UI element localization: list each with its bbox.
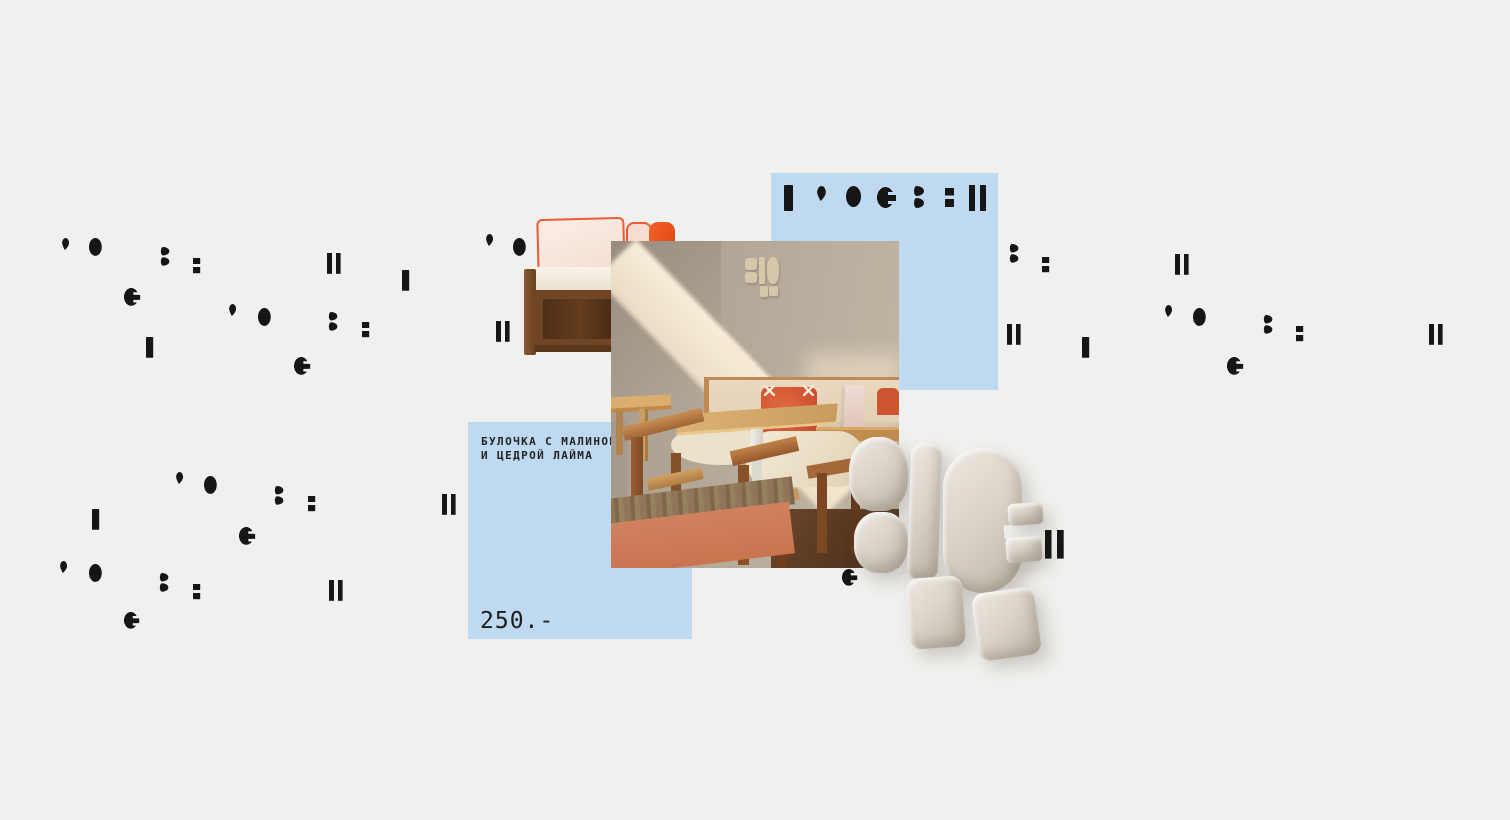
logo-blob-bottom-icon [854,512,908,573]
brand-glyph-esq-icon [308,496,315,511]
brand-glyph-oval-icon [258,308,271,326]
brand-glyph-oval-icon [89,238,102,256]
chair-leg [817,473,827,553]
wall-logo-icon [767,257,779,284]
sofa-wood-base [534,290,620,352]
wall-logo-icon [760,286,768,297]
brand-glyph-z3-icon [274,486,283,505]
brand-glyph-cnotch-icon [239,527,255,545]
poster-canvas: БУЛОЧКА С МАЛИНОЙ, И ЦЕДРОЙ ЛАЙМА 250.- [0,0,1510,820]
brand-glyph-cnotch-icon [1227,357,1243,375]
brand-glyph-dbar-icon [1429,324,1443,345]
brand-glyph-dbar-icon [442,494,456,515]
product-title-line1: БУЛОЧКА С МАЛИНОЙ, [481,434,625,449]
brand-glyph-esq-icon [193,258,200,273]
brand-glyph-z3-icon [159,573,168,592]
brand-glyph-cnotch-icon [124,288,140,306]
brand-glyph-oval-icon [89,564,102,582]
brand-glyph-apos-icon [176,472,183,484]
logo-bar-icon [907,443,943,581]
brand-glyph-dbar-icon [1175,254,1189,275]
wall-logo-icon [759,257,765,284]
brand-glyph-esq-icon [362,322,369,337]
brand-glyph-z3-icon [1263,315,1272,334]
brand-glyph-dbar-icon [327,253,341,274]
brand-glyph-z3-icon [160,247,169,266]
brand-glyph-apos-icon [1165,305,1172,317]
brand-glyph-cnotch-icon [294,357,310,375]
wall-logo-icon [769,286,778,296]
brand-glyph-z3-icon [1009,244,1018,263]
brand-glyph-dbar-icon [329,580,343,601]
brand-glyph-apos-icon [229,304,236,316]
brand-glyph-esq-icon [193,584,200,599]
brand-glyph-apos-icon [486,234,493,246]
brand-glyph-bar-icon [1082,337,1089,358]
logo-tab-top-icon [1007,502,1043,526]
red-cushion-partial [877,388,899,415]
product-title-line2: И ЦЕДРОЙ ЛАЙМА [481,448,593,463]
brand-glyph-apos-icon [62,238,69,250]
brand-glyph-bar-icon [92,509,99,530]
brand-glyph-cnotch-icon [124,612,139,629]
brand-logo-3d [840,430,1055,670]
brand-glyph-dbar-icon [496,321,510,342]
logo-tab-bottom-icon [1005,536,1043,563]
logo-blob-top-icon [849,437,908,511]
logo-square-right-icon [971,586,1043,662]
brand-glyph-esq-icon [1042,257,1049,272]
brand-glyph-dbar-icon [1007,324,1021,345]
wall-logo-icon [745,258,757,270]
brand-glyph-apos-icon [60,561,67,573]
brand-glyph-z3-icon [328,312,337,331]
brand-glyph-oval-icon [1193,308,1206,326]
wall-logo-icon [745,272,757,283]
brand-glyph-bar-icon [146,337,153,358]
brand-glyph-oval-icon [204,476,217,494]
brand-glyph-esq-icon [1296,326,1303,341]
product-price: 250.- [480,608,554,634]
left-table-leg [616,411,623,455]
logo-square-left-icon [906,575,967,650]
brand-glyph-bar-icon [402,270,409,291]
